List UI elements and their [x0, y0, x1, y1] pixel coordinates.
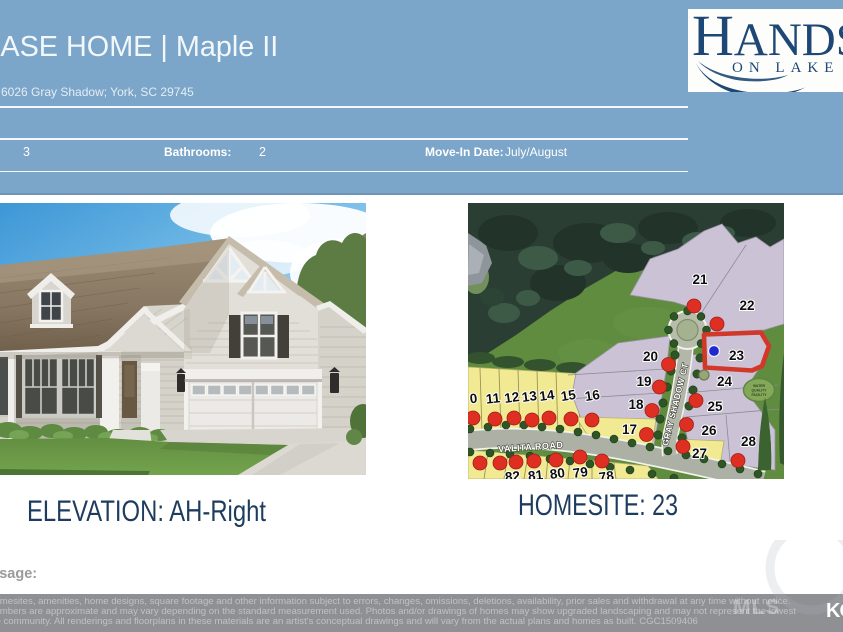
- svg-text:17: 17: [622, 422, 637, 437]
- svg-text:QUALITY: QUALITY: [752, 389, 768, 393]
- svg-text:24: 24: [717, 374, 733, 389]
- svg-text:12: 12: [503, 389, 520, 406]
- svg-text:19: 19: [636, 374, 651, 389]
- svg-text:80: 80: [549, 465, 566, 479]
- svg-text:15: 15: [560, 387, 578, 404]
- svg-text:21: 21: [692, 272, 708, 287]
- svg-text:27: 27: [692, 446, 707, 461]
- svg-text:23: 23: [729, 348, 745, 363]
- svg-text:28: 28: [741, 434, 757, 449]
- svg-text:81: 81: [527, 467, 544, 479]
- svg-text:14: 14: [538, 387, 555, 404]
- svg-text:FACILITY: FACILITY: [751, 393, 767, 397]
- svg-text:25: 25: [707, 399, 723, 414]
- svg-text:WATER: WATER: [753, 384, 766, 388]
- svg-text:20: 20: [643, 349, 658, 364]
- svg-text:82: 82: [504, 468, 521, 479]
- svg-text:22: 22: [739, 298, 754, 313]
- svg-text:16: 16: [584, 387, 602, 404]
- svg-text:11: 11: [485, 390, 501, 406]
- svg-text:13: 13: [521, 388, 538, 405]
- svg-text:0: 0: [469, 391, 478, 407]
- svg-text:79: 79: [572, 464, 589, 479]
- svg-text:26: 26: [701, 423, 717, 438]
- svg-text:18: 18: [628, 397, 644, 412]
- svg-text:78: 78: [598, 468, 615, 479]
